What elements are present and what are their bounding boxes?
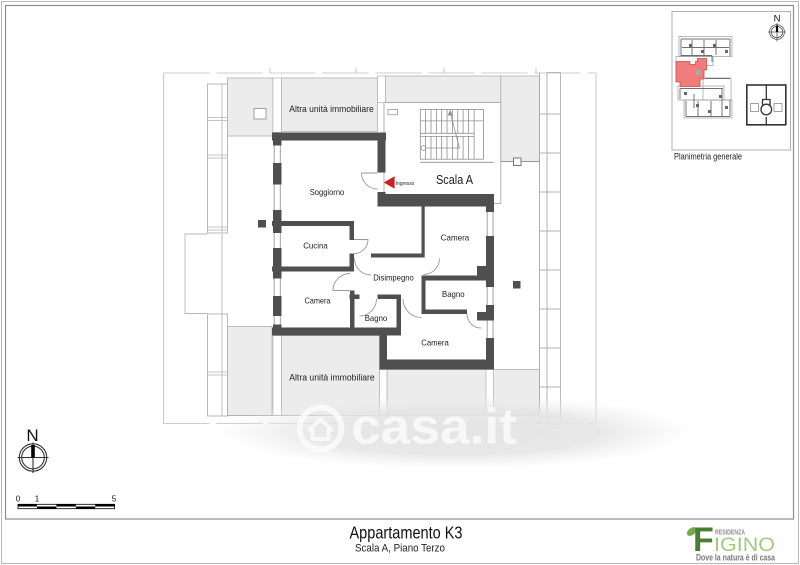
svg-text:Cucina: Cucina bbox=[303, 241, 328, 251]
svg-text:Camera: Camera bbox=[421, 338, 449, 348]
svg-text:Scala A: Scala A bbox=[436, 172, 473, 187]
svg-text:Bagno: Bagno bbox=[442, 289, 465, 299]
svg-text:0: 0 bbox=[16, 495, 21, 504]
svg-text:Soggiorno: Soggiorno bbox=[310, 187, 345, 197]
svg-text:Altra unità immobiliare: Altra unità immobiliare bbox=[289, 104, 374, 114]
svg-text:Ingresso: Ingresso bbox=[396, 181, 415, 187]
svg-text:5: 5 bbox=[112, 495, 117, 504]
svg-text:Appartamento K3: Appartamento K3 bbox=[350, 523, 463, 543]
svg-text:Camera: Camera bbox=[441, 233, 470, 243]
svg-text:casa.it: casa.it bbox=[351, 399, 517, 455]
svg-text:Disimpegno: Disimpegno bbox=[373, 273, 414, 283]
svg-text:Scala A, Piano Terzo: Scala A, Piano Terzo bbox=[355, 543, 445, 555]
svg-text:Camera: Camera bbox=[305, 296, 331, 306]
svg-text:Dove la natura è di casa: Dove la natura è di casa bbox=[696, 552, 776, 562]
svg-text:Planimetria generale: Planimetria generale bbox=[674, 152, 742, 162]
svg-text:N: N bbox=[26, 426, 38, 445]
svg-text:Altra unità immobiliare: Altra unità immobiliare bbox=[289, 373, 375, 383]
svg-text:1: 1 bbox=[35, 495, 40, 504]
svg-text:N: N bbox=[774, 14, 781, 25]
svg-text:Bagno: Bagno bbox=[365, 313, 388, 323]
